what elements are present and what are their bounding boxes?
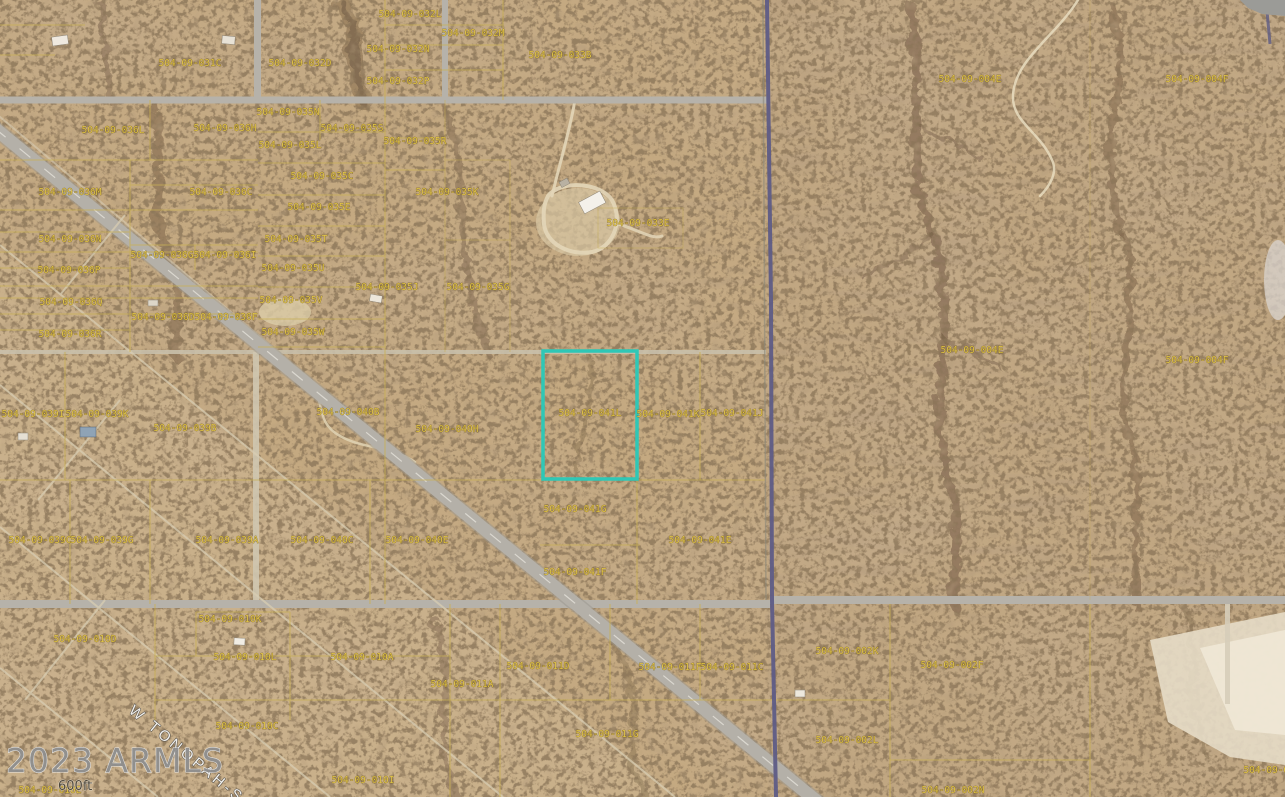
- parcel-label: 504-09-040H: [416, 424, 479, 435]
- satellite-map: 504-09-031C504-09-032D504-09-032L504-09-…: [0, 0, 1285, 797]
- parcel-label: 504-09-004F: [1166, 355, 1229, 366]
- parcel-label: 504-09-036I: [194, 250, 257, 261]
- parcel-label: 504-09-002F: [921, 660, 984, 671]
- aerial-parcel-map: 504-09-031C504-09-032D504-09-032L504-09-…: [0, 0, 1285, 797]
- parcel-label: 504-09-039K: [66, 409, 129, 420]
- parcel-label: 504-09-036F: [195, 312, 258, 323]
- parcel-label: 504-09-036R: [39, 329, 102, 340]
- parcel-label: 504-09-039A: [196, 535, 259, 546]
- parcel-label: 504-09-032D: [269, 58, 332, 69]
- parcel-label: 504-09-032M: [442, 28, 505, 39]
- parcel-label: 504-09-036N: [39, 234, 102, 245]
- parcel-label: 504-09-039G: [71, 535, 134, 546]
- parcel-label: 504-09-041L: [559, 408, 622, 419]
- parcel-label: 504-09-041G: [544, 504, 607, 515]
- parcel-label: 504-09-031C: [159, 58, 222, 69]
- parcel-label: 504-09-036H: [194, 123, 257, 134]
- parcel-label: 504-09-039B: [154, 423, 217, 434]
- parcel-label: 504-09-036G: [131, 250, 194, 261]
- parcel-label: 504-09-011D: [507, 661, 570, 672]
- parcel-label: 504-09-035S: [321, 123, 384, 134]
- parcel-label: 504-09-032L: [379, 9, 442, 20]
- parcel-label: 504-09-036L: [82, 125, 145, 136]
- parcel-label: 504-09-004E: [941, 345, 1004, 356]
- brush-speckle: [0, 0, 1285, 797]
- parcel-label: 504-09-010D: [54, 634, 117, 645]
- parcel-label: 504-09-036P: [38, 265, 101, 276]
- scale-bar-label: 600ft: [58, 779, 92, 794]
- parcel-label: 504-09-040C: [291, 535, 354, 546]
- parcel-label: 504-09-041E: [669, 535, 732, 546]
- parcel-label: 504-09-036Q: [40, 297, 103, 308]
- parcel-label: 504-09-004E: [939, 74, 1002, 85]
- parcel-label: 504-09-035V: [260, 295, 323, 306]
- parcel-label: 504-09-002L: [816, 735, 879, 746]
- parcel-label: 504-09-040B: [317, 407, 380, 418]
- parcel-label: 504-09-035U: [262, 263, 325, 274]
- parcel-label: 504-09-011C: [701, 662, 764, 673]
- parcel-label: 504-09-035R: [384, 136, 447, 147]
- parcel-label: 504-09-041K: [637, 409, 700, 420]
- parcel-label: 504-09-035T: [265, 234, 328, 245]
- parcel-label: 504-09-032N: [367, 44, 430, 55]
- parcel-label: 504-09-035C: [291, 171, 354, 182]
- armls-watermark: 2023 ARMLS: [6, 741, 224, 780]
- parcel-label: 504-09-002K: [816, 646, 879, 657]
- parcel-label: 504-09-032P: [367, 76, 430, 87]
- parcel-label: 504-09-010A: [331, 652, 394, 663]
- parcel-label: 504-09-002N: [922, 785, 985, 796]
- parcel-label: 504-09-004F: [1166, 74, 1229, 85]
- parcel-label: 504-09-035J: [356, 282, 419, 293]
- parcel-label: 504-09-033B: [529, 50, 592, 61]
- parcel-label: 504-09-041F: [544, 567, 607, 578]
- parcel-label: 504-09-035G: [447, 282, 510, 293]
- parcel-label: 504-09-036C: [190, 187, 253, 198]
- parcel-label: 504-09-035W: [262, 327, 325, 338]
- parcel-label: 504-09-035E: [288, 202, 351, 213]
- parcel-label: 504-09-010L: [214, 652, 277, 663]
- parcel-label: 504-09-005: [1243, 765, 1285, 776]
- parcel-label: 504-09-035L: [259, 140, 322, 151]
- parcel-label: 504-09-041J: [701, 408, 764, 419]
- parcel-label: 504-09-040E: [386, 535, 449, 546]
- road-top-horizontal: [0, 97, 768, 104]
- parcel-label: 504-09-010I: [332, 775, 395, 786]
- parcel-label: 504-09-011A: [431, 679, 494, 690]
- parcel-label: 504-09-010C: [216, 721, 279, 732]
- parcel-label: 504-09-033E: [607, 218, 670, 229]
- parcel-label: 504-09-036M: [39, 187, 102, 198]
- parcel-label: 504-09-039C: [9, 535, 72, 546]
- road-mid-horizontal: [0, 350, 766, 354]
- parcel-label: 504-09-010K: [199, 614, 262, 625]
- parcel-label: 504-09-035K: [416, 187, 479, 198]
- parcel-label: 504-09-035N: [257, 107, 320, 118]
- parcel-label: 504-09-011G: [576, 729, 639, 740]
- parcel-label: 504-09-036D: [132, 312, 195, 323]
- parcel-label: 504-09-011F: [639, 662, 702, 673]
- parcel-label: 504-09-039I: [2, 409, 65, 420]
